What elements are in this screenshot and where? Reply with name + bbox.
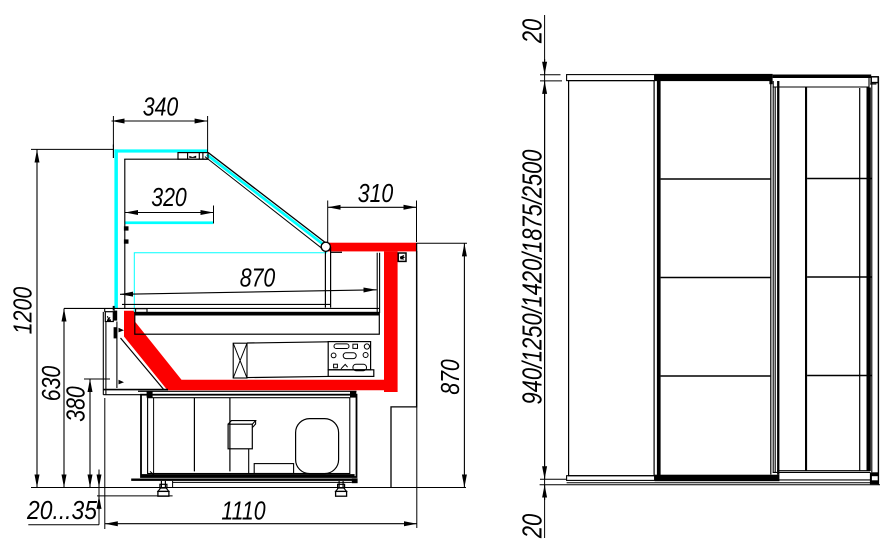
svg-text:20: 20 bbox=[517, 19, 548, 44]
svg-text:340: 340 bbox=[143, 93, 179, 123]
svg-text:320: 320 bbox=[151, 183, 187, 213]
svg-text:380: 380 bbox=[62, 386, 92, 422]
svg-text:20: 20 bbox=[517, 514, 548, 539]
svg-text:1110: 1110 bbox=[221, 497, 266, 527]
svg-text:20...35: 20...35 bbox=[26, 497, 97, 526]
svg-text:1200: 1200 bbox=[9, 286, 39, 334]
svg-text:870: 870 bbox=[436, 359, 466, 395]
svg-text:310: 310 bbox=[358, 179, 394, 209]
svg-text:940/1250/1420/1875/2500: 940/1250/1420/1875/2500 bbox=[517, 150, 548, 405]
svg-text:870: 870 bbox=[240, 264, 276, 294]
